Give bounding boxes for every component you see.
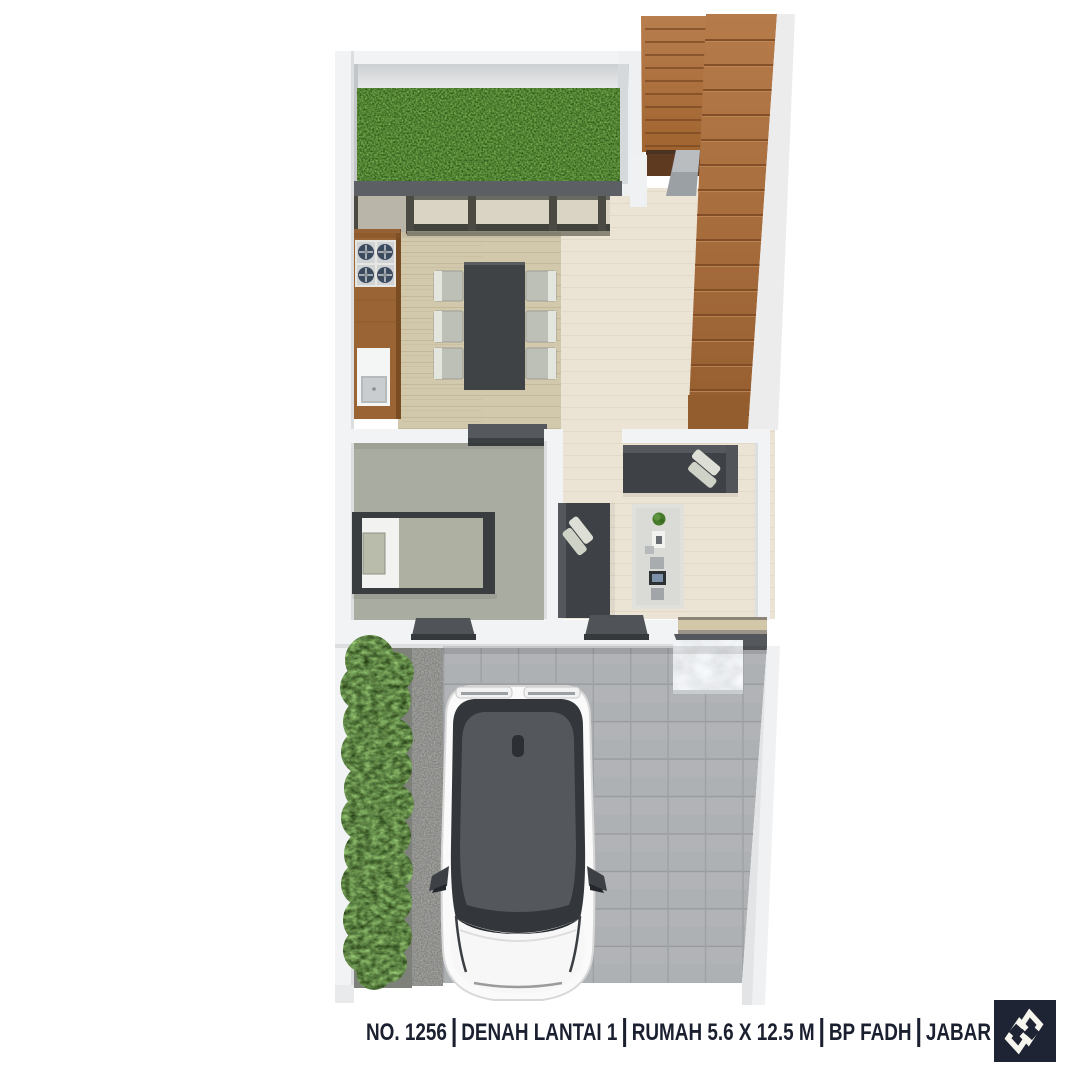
- svg-text:NO. 1256 | DENAH LANTAI 1 | RU: NO. 1256 | DENAH LANTAI 1 | RUMAH 5.6 X …: [366, 1012, 991, 1047]
